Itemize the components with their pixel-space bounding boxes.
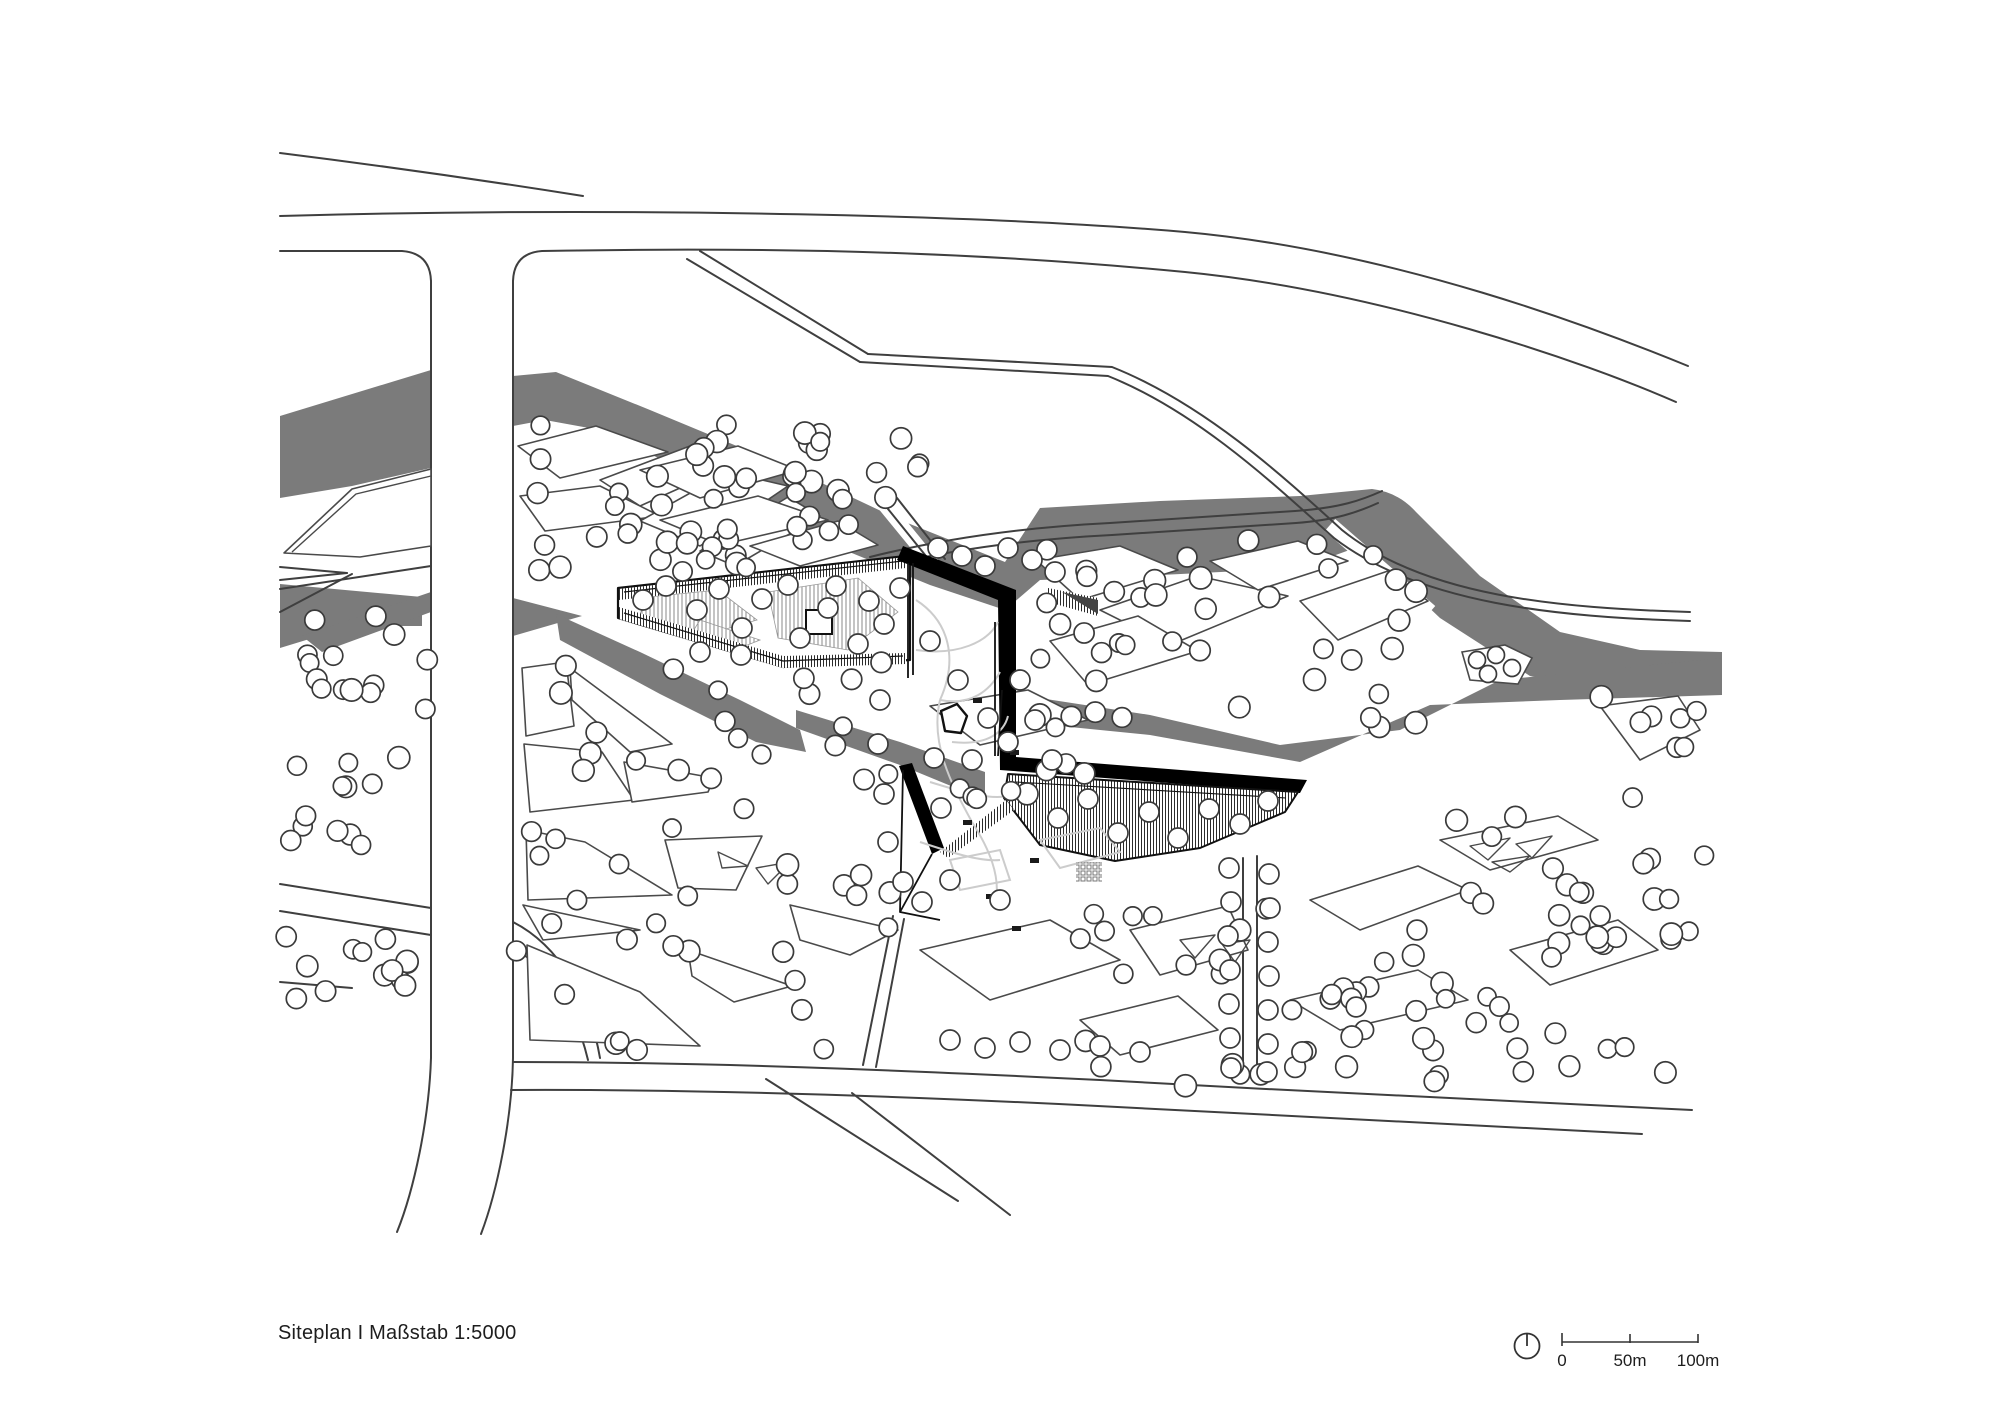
tree — [690, 642, 710, 662]
tree — [1168, 828, 1188, 848]
tree — [305, 610, 325, 630]
tree — [1473, 893, 1494, 914]
tree — [794, 668, 814, 688]
tree — [1375, 953, 1394, 972]
tree — [627, 1040, 648, 1061]
tree — [948, 670, 968, 690]
tree — [1559, 1056, 1580, 1077]
tree — [1381, 638, 1403, 660]
tree — [962, 750, 982, 770]
tree — [1590, 906, 1610, 926]
tree — [353, 943, 371, 961]
tree — [1259, 864, 1279, 884]
tree — [1590, 686, 1612, 708]
tree — [416, 699, 435, 718]
tree — [752, 589, 772, 609]
tree — [940, 1030, 960, 1050]
tree — [1513, 1062, 1533, 1082]
tree — [1077, 566, 1097, 586]
tree — [1655, 1062, 1676, 1083]
tree — [752, 745, 771, 764]
tree — [1542, 948, 1561, 967]
tree — [1342, 650, 1362, 670]
courtyard-bench — [963, 820, 972, 825]
tree — [1144, 907, 1162, 925]
tree — [847, 885, 867, 905]
tree — [787, 517, 807, 537]
tree — [530, 847, 548, 865]
tree — [998, 732, 1018, 752]
tree — [920, 631, 940, 651]
road — [700, 251, 868, 354]
tree — [1504, 660, 1521, 677]
tree — [647, 914, 666, 933]
tree — [819, 521, 838, 540]
tree — [1095, 921, 1114, 940]
tree — [677, 533, 698, 554]
tree — [668, 759, 689, 780]
tree — [1361, 708, 1381, 728]
tree — [1046, 718, 1064, 736]
tree — [1022, 550, 1042, 570]
tree — [686, 444, 708, 466]
tree — [1112, 708, 1132, 728]
tree — [1221, 1058, 1241, 1078]
tree — [1633, 853, 1653, 873]
road — [280, 911, 431, 935]
tree — [952, 546, 972, 566]
tree — [731, 645, 751, 665]
tree — [339, 754, 357, 772]
tree — [1238, 530, 1259, 551]
tree — [1549, 905, 1570, 926]
tree — [656, 576, 676, 596]
tree — [1037, 593, 1056, 612]
tree — [1229, 696, 1250, 717]
tree — [1220, 1028, 1240, 1048]
courtyard-grid-detail — [1076, 862, 1102, 882]
courtyard-bench — [973, 698, 982, 703]
tree — [777, 854, 799, 876]
tree — [814, 1040, 833, 1059]
tree — [1104, 582, 1124, 602]
tree — [507, 941, 527, 961]
tree — [388, 747, 410, 769]
tree — [1322, 985, 1342, 1005]
tree — [1258, 791, 1278, 811]
tree — [1086, 670, 1107, 691]
tree — [1123, 907, 1142, 926]
tree — [527, 483, 548, 504]
tree — [1176, 955, 1196, 975]
scale-label-0: 0 — [1557, 1351, 1566, 1370]
tree — [1488, 647, 1505, 664]
tree — [875, 487, 897, 509]
road — [513, 250, 1676, 402]
tree — [870, 690, 890, 710]
tree — [871, 652, 892, 673]
tree — [1424, 1071, 1444, 1091]
tree — [1219, 858, 1239, 878]
tree — [395, 975, 416, 996]
tree — [1413, 1028, 1435, 1050]
tree — [1145, 584, 1167, 606]
tree — [1406, 1001, 1426, 1021]
tree — [709, 681, 727, 699]
road — [687, 259, 860, 362]
tree — [1108, 823, 1128, 843]
tree — [734, 799, 753, 818]
tree — [785, 971, 805, 991]
tree — [1466, 1013, 1486, 1033]
tree — [550, 682, 572, 704]
tree — [704, 490, 722, 508]
tree — [610, 854, 629, 873]
tree — [1219, 994, 1239, 1014]
tree — [878, 832, 898, 852]
tree — [1078, 789, 1098, 809]
tree — [833, 490, 852, 509]
tree — [908, 457, 928, 477]
tree — [1388, 609, 1410, 631]
tree — [657, 531, 679, 553]
tree-parcel — [1310, 866, 1468, 930]
tree — [1114, 964, 1133, 983]
road — [852, 1093, 1010, 1215]
tree — [729, 729, 748, 748]
tree — [978, 708, 998, 728]
tree — [890, 428, 911, 449]
tree — [1446, 809, 1468, 831]
tree — [1469, 652, 1486, 669]
tree — [324, 646, 343, 665]
road — [511, 1090, 1642, 1134]
tree — [928, 538, 948, 558]
tree — [663, 659, 683, 679]
tree — [1177, 547, 1197, 567]
tree — [1074, 763, 1095, 784]
tree — [1042, 750, 1062, 770]
tree — [990, 890, 1010, 910]
tree — [848, 634, 868, 654]
tree — [1341, 1026, 1362, 1047]
tree — [1085, 702, 1105, 722]
tree-parcel — [527, 945, 700, 1046]
tree — [736, 468, 756, 488]
tree — [567, 890, 586, 909]
tree — [1292, 1042, 1312, 1062]
tree — [841, 669, 861, 689]
tree — [1220, 960, 1240, 980]
tree — [1257, 1062, 1277, 1082]
tree — [340, 679, 362, 701]
tree — [1002, 782, 1021, 801]
tree — [1258, 1000, 1278, 1020]
tree — [1660, 923, 1682, 945]
road — [280, 567, 347, 573]
road — [876, 919, 904, 1067]
tree — [1598, 1040, 1616, 1058]
tree — [1084, 905, 1103, 924]
tree — [1385, 569, 1406, 590]
tree — [825, 735, 845, 755]
tree — [276, 927, 296, 947]
tree-parcel — [665, 836, 762, 890]
courtyard-bench — [1012, 926, 1021, 931]
tree — [673, 562, 692, 581]
plan-caption: Siteplan I Maßstab 1:5000 — [278, 1322, 516, 1345]
road — [280, 251, 431, 281]
tree — [1500, 1014, 1518, 1032]
tree — [912, 892, 932, 912]
tree — [361, 683, 380, 702]
tree — [967, 789, 986, 808]
tree — [709, 579, 729, 599]
tree — [1199, 799, 1219, 819]
road — [766, 1079, 958, 1201]
tree — [834, 717, 852, 735]
tree — [611, 1032, 629, 1050]
tree — [296, 806, 316, 826]
tree — [384, 624, 405, 645]
tree — [737, 558, 755, 576]
siteplan-drawing — [0, 0, 2000, 1414]
tree — [1163, 632, 1182, 651]
tree — [618, 524, 637, 543]
tree — [522, 822, 542, 842]
tree — [868, 734, 888, 754]
tree — [1480, 666, 1497, 683]
tree — [718, 519, 737, 538]
tree — [333, 777, 351, 795]
tree — [811, 433, 829, 451]
tree — [1490, 997, 1509, 1016]
tree — [1010, 670, 1030, 690]
tree — [530, 449, 550, 469]
tree — [617, 929, 637, 949]
tree — [1623, 788, 1642, 807]
tree — [687, 600, 707, 620]
tree — [1092, 643, 1112, 663]
tree — [777, 874, 797, 894]
scale-bar-rule — [1562, 1333, 1698, 1346]
tree — [363, 774, 382, 793]
tree — [297, 956, 318, 977]
tree — [1369, 685, 1388, 704]
tree — [572, 759, 594, 781]
tree — [714, 466, 736, 488]
tree — [998, 538, 1018, 558]
tree — [663, 936, 683, 956]
tree — [1505, 806, 1526, 827]
scale-label-100m: 100m — [1677, 1351, 1720, 1370]
tree — [531, 416, 550, 435]
tree — [1090, 1036, 1110, 1056]
tree — [874, 784, 894, 804]
tree — [555, 985, 574, 1004]
tree — [778, 575, 798, 595]
tree-parcel — [920, 920, 1120, 1000]
tree — [1130, 1042, 1150, 1062]
tree — [1482, 827, 1501, 846]
tree — [1190, 640, 1211, 661]
tree — [859, 591, 879, 611]
tree — [587, 527, 607, 547]
tree — [874, 614, 894, 634]
tree — [352, 835, 371, 854]
tree — [627, 751, 645, 769]
tree — [1260, 898, 1280, 918]
tree — [773, 941, 794, 962]
tree — [893, 872, 913, 892]
tree — [1675, 738, 1694, 757]
tree — [1116, 636, 1135, 655]
tree — [678, 886, 697, 905]
tree — [281, 830, 301, 850]
tree — [890, 578, 910, 598]
courtyard-bench — [1030, 858, 1039, 863]
tree — [1437, 990, 1455, 1008]
tree — [1025, 710, 1045, 730]
tree — [315, 981, 335, 1001]
tree — [715, 711, 735, 731]
tree — [1660, 890, 1679, 909]
tree — [1307, 534, 1327, 554]
tree — [546, 829, 565, 848]
tree — [1630, 712, 1650, 732]
north-indicator-icon — [1515, 1334, 1540, 1359]
tree — [529, 560, 550, 581]
tree — [1507, 1038, 1527, 1058]
tree — [1139, 802, 1159, 822]
tree — [1048, 808, 1068, 828]
tree — [975, 1038, 995, 1058]
tree — [701, 768, 721, 788]
tree — [1402, 945, 1424, 967]
road — [280, 212, 1688, 366]
road — [280, 884, 431, 908]
tree — [818, 598, 838, 618]
tree — [366, 606, 386, 626]
tree — [924, 748, 944, 768]
tree — [1045, 562, 1065, 582]
tree — [542, 914, 561, 933]
tree — [606, 497, 624, 515]
tree — [826, 576, 846, 596]
tree — [549, 556, 571, 578]
tree — [785, 462, 806, 483]
tree — [879, 918, 897, 936]
siteplan-page: Siteplan I Maßstab 1:5000 0 50m 100m — [0, 0, 2000, 1414]
tree — [1230, 814, 1250, 834]
tree — [663, 819, 681, 837]
tree — [1258, 932, 1278, 952]
road — [280, 153, 583, 196]
tree — [1405, 580, 1427, 602]
tree — [288, 756, 307, 775]
tree — [867, 463, 887, 483]
tree — [854, 769, 874, 789]
tree — [1031, 650, 1049, 668]
tree — [1545, 1023, 1565, 1043]
tree — [633, 590, 653, 610]
tree — [1346, 997, 1366, 1017]
tree — [975, 556, 995, 576]
tree — [787, 483, 806, 502]
tree — [1221, 892, 1241, 912]
tree — [1050, 1040, 1070, 1060]
tree — [1336, 1056, 1358, 1078]
tree — [327, 821, 348, 842]
tree — [1258, 586, 1279, 607]
tree — [1010, 1032, 1030, 1052]
tree — [1687, 702, 1706, 721]
tree — [879, 765, 897, 783]
tree — [1319, 559, 1338, 578]
tree — [1543, 858, 1564, 879]
tree — [1050, 614, 1071, 635]
tree — [651, 494, 672, 515]
tree — [1074, 623, 1094, 643]
parcel-layer — [284, 426, 1700, 1055]
tree — [1586, 926, 1608, 948]
tree — [1189, 567, 1211, 589]
tree — [1314, 639, 1333, 658]
tree — [375, 929, 395, 949]
tree — [931, 798, 951, 818]
tree — [1071, 929, 1090, 948]
road — [481, 281, 513, 1234]
tree — [1091, 1057, 1111, 1077]
tree — [1218, 926, 1238, 946]
tree — [1405, 712, 1427, 734]
tree — [839, 515, 858, 534]
scale-label-50m: 50m — [1613, 1351, 1646, 1370]
tree — [1259, 966, 1279, 986]
tree — [1258, 1034, 1278, 1054]
tree — [697, 551, 715, 569]
scale-bar: 0 50m 100m — [1505, 1322, 1735, 1382]
road — [280, 573, 347, 580]
tree — [1570, 883, 1589, 902]
tree — [312, 679, 331, 698]
tree — [1364, 546, 1382, 564]
tree — [1174, 1075, 1196, 1097]
tree — [1282, 1000, 1301, 1019]
tree — [940, 870, 960, 890]
tree — [1195, 598, 1216, 619]
tree — [417, 650, 437, 670]
tree — [790, 628, 810, 648]
tree — [1615, 1038, 1633, 1056]
tree — [851, 865, 872, 886]
tree — [732, 618, 752, 638]
tree — [647, 465, 668, 486]
tree — [1407, 920, 1427, 940]
tree — [792, 1000, 812, 1020]
tree — [586, 722, 607, 743]
tree — [286, 989, 306, 1009]
courtyard-edge — [900, 912, 940, 920]
tree — [556, 656, 576, 676]
tree — [1695, 846, 1714, 865]
tree — [1304, 669, 1326, 691]
tree — [535, 535, 555, 555]
